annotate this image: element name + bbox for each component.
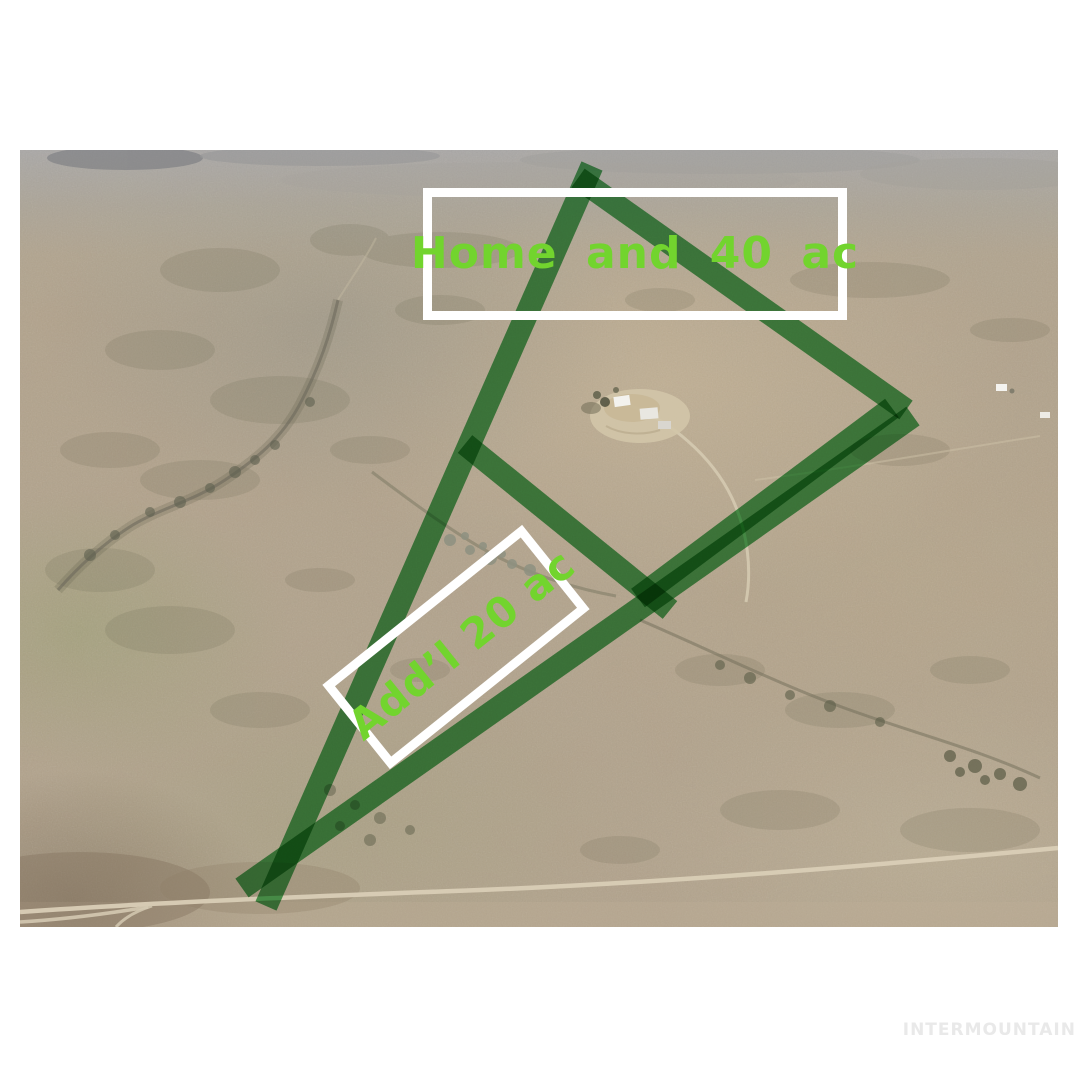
listing-image-canvas: Home and 40 ac Add’l 20 ac INTERMOUNTAIN [0,0,1080,1080]
boundary-bottom-edge-line [242,416,913,888]
brokerage-watermark: INTERMOUNTAIN [903,1020,1076,1040]
boundary-bottom-edge-double-stroke [638,408,892,598]
parcel-label-home-40ac-text: Home and 40 ac [411,232,859,276]
parcel-label-home-40ac: Home and 40 ac [423,188,847,320]
aerial-photo: Home and 40 ac Add’l 20 ac [20,150,1058,927]
